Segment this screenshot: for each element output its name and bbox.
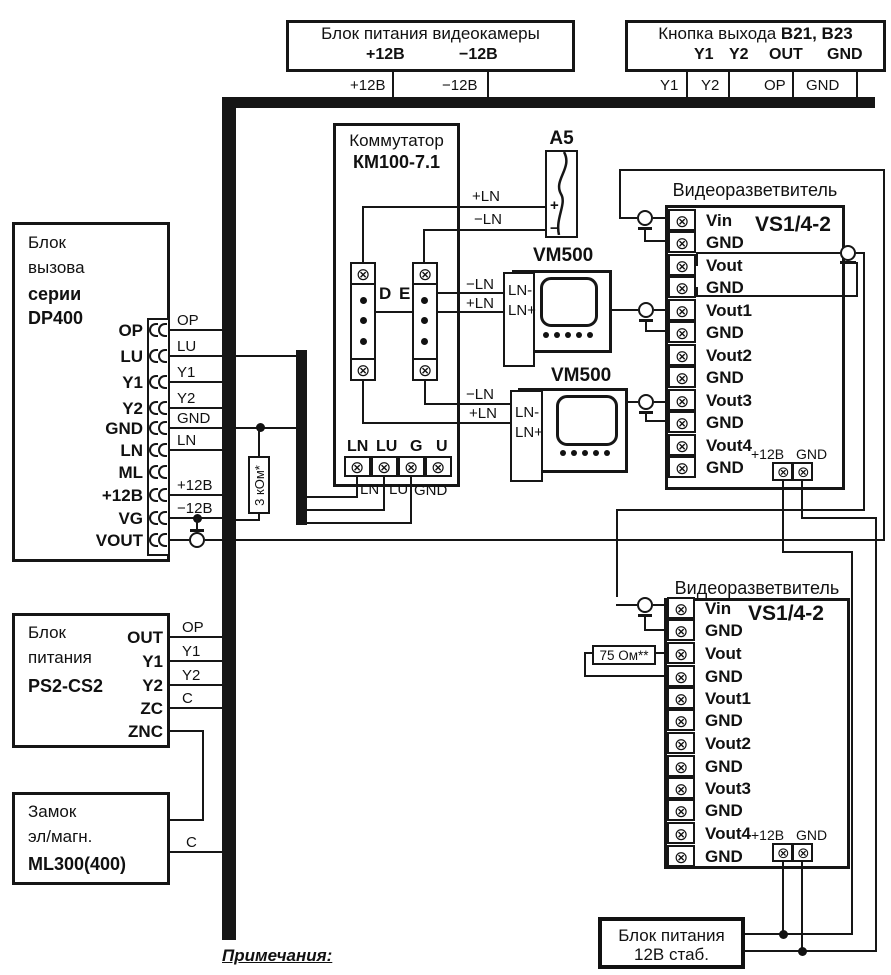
camera-plus-terminal: +	[550, 197, 559, 214]
power-label: +12В	[751, 827, 784, 843]
strip-dot	[360, 338, 367, 345]
terminal-block: ⊗	[668, 344, 696, 366]
terminal-label: GND	[705, 757, 743, 777]
monitor-dot	[604, 450, 610, 456]
camera-a5-label: А5	[545, 128, 578, 150]
monitor-dot	[576, 332, 582, 338]
terminal-block: ⊗	[668, 366, 696, 388]
terminal-block: ⊗	[667, 687, 695, 709]
wire-label: GND	[414, 482, 447, 499]
wire	[801, 517, 877, 519]
clamp-icon	[158, 443, 167, 457]
terminal-label: Vout	[706, 256, 743, 276]
clamp-icon	[158, 349, 167, 363]
junction-dot	[779, 930, 788, 939]
clamp-icon	[158, 375, 167, 389]
clamp-icon	[149, 375, 158, 389]
exit-button-title-text: Кнопка выхода	[658, 24, 781, 43]
terminal-label: Vout	[705, 644, 742, 664]
wire-label: LN	[360, 481, 379, 498]
wire	[424, 381, 426, 405]
terminal-block: ⊗	[667, 709, 695, 731]
terminal-label: GND	[705, 621, 743, 641]
wire	[487, 72, 489, 99]
terminal-label: LN	[60, 441, 143, 461]
wire	[653, 604, 667, 606]
terminal-label: U	[436, 438, 448, 456]
wire	[170, 851, 222, 853]
lock-title: Замок	[28, 802, 76, 822]
psu-12v-box: Блок питания 12В стаб.	[598, 917, 745, 969]
camera-minus-terminal: −	[550, 220, 559, 237]
terminal-label: LU	[376, 438, 397, 456]
wire	[170, 660, 222, 662]
terminal-block: ⊗	[772, 843, 793, 862]
psu-12v-title: Блок питания	[602, 926, 741, 946]
wire	[654, 401, 668, 403]
terminal-label: GND	[706, 413, 744, 433]
wire	[376, 311, 412, 313]
wire	[170, 730, 204, 732]
screw-terminal-icon: ⊗	[675, 325, 689, 342]
screw-terminal-icon: ⊗	[675, 235, 689, 252]
wire	[170, 707, 222, 709]
wire	[616, 509, 618, 597]
monitor-dot	[543, 332, 549, 338]
terminal-block: ⊗	[667, 597, 695, 619]
monitor-dot	[582, 450, 588, 456]
wire	[645, 420, 668, 422]
power-label: GND	[796, 446, 827, 462]
wire	[307, 522, 412, 524]
screw-terminal-icon: ⊗	[675, 460, 689, 477]
wire	[612, 309, 638, 311]
wire-label: LU	[389, 481, 408, 498]
monitor-terminal-box: LN- LN+	[510, 390, 543, 482]
terminal-label: GND	[705, 711, 743, 731]
screw-terminal-icon: ⊗	[675, 438, 689, 455]
terminal-block: ⊗	[371, 456, 398, 477]
screw-terminal-icon: ⊗	[418, 266, 432, 283]
splitter-model: VS1/4-2	[755, 213, 831, 237]
wire	[745, 933, 853, 935]
wire	[362, 206, 364, 264]
splitter-title: Видеоразветвитель	[665, 180, 845, 201]
terminal-label: LN-	[515, 404, 539, 421]
terminal-block: ⊗	[398, 456, 425, 477]
terminal-label: LN-	[508, 282, 532, 299]
wire	[202, 730, 204, 821]
column-e-label: E	[399, 284, 410, 304]
strip-dot	[360, 317, 367, 324]
wire	[782, 551, 853, 553]
wire	[697, 252, 840, 254]
terminal-label: LN+	[508, 302, 536, 319]
camera-psu-minus: −12В	[459, 46, 498, 64]
terminal-label: Y2	[60, 399, 143, 419]
terminal-block: ⊗	[668, 299, 696, 321]
terminal-label: +12В	[60, 486, 143, 506]
wire	[644, 629, 667, 631]
wire-label: +LN	[469, 405, 497, 422]
resistor-value: 3 кОм*	[252, 465, 267, 506]
coax-connector-icon	[638, 302, 654, 318]
call-block-title: Блок	[28, 233, 66, 253]
clamp-icon	[149, 323, 158, 337]
wire	[616, 509, 865, 511]
wire	[801, 862, 803, 952]
monitor-name: VM500	[551, 365, 611, 387]
terminal-block: ⊗	[667, 822, 695, 844]
terminal-label: LU	[60, 347, 143, 367]
screw-terminal-icon: ⊗	[674, 691, 688, 708]
clamp-icon	[158, 401, 167, 415]
screw-terminal-icon: ⊗	[675, 348, 689, 365]
wire-label: LN	[177, 432, 196, 449]
wire-label: −LN	[474, 211, 502, 228]
lock-model: ML300(400)	[28, 854, 126, 875]
power-label: +12В	[751, 446, 784, 462]
wire	[840, 261, 856, 264]
terminal-label: Vin	[705, 599, 731, 619]
mid-riser-cable	[296, 350, 307, 525]
screw-terminal-icon: ⊗	[674, 759, 688, 776]
wire	[851, 551, 853, 935]
screw-terminal-icon: ⊗	[674, 826, 688, 843]
wire	[696, 252, 698, 266]
terminal-label: Vout4	[705, 824, 751, 844]
left-riser-cable	[222, 97, 236, 940]
wire	[619, 217, 637, 219]
screw-terminal-icon: ⊗	[674, 713, 688, 730]
terminal-label: GND	[705, 801, 743, 821]
wire	[782, 481, 784, 553]
terminal-block: ⊗	[792, 843, 813, 862]
call-block-title: вызова	[28, 258, 85, 278]
wire	[619, 169, 885, 171]
screw-terminal-icon: ⊗	[777, 846, 790, 861]
wire	[170, 449, 222, 451]
wire	[875, 517, 877, 952]
coax-connector-icon	[189, 532, 205, 548]
clamp-icon	[158, 488, 167, 502]
strip-dot	[421, 297, 428, 304]
wire-label: −LN	[466, 276, 494, 293]
psu-title: Блок	[28, 623, 66, 643]
wire	[170, 427, 307, 429]
terminal-label: GND	[705, 847, 743, 867]
wire	[883, 169, 885, 541]
terminal-label: GND	[706, 323, 744, 343]
terminal-label: ML	[60, 463, 143, 483]
wire	[170, 539, 189, 541]
camera-a5-box: + −	[545, 150, 578, 238]
terminal-block: ⊗	[668, 231, 696, 253]
wire-label: GND	[177, 410, 210, 427]
camera-psu-title: Блок питания видеокамеры	[290, 24, 571, 44]
terminal-block: ⊗	[668, 321, 696, 343]
wire	[745, 950, 877, 952]
screw-terminal-icon: ⊗	[356, 362, 370, 379]
wiring-diagram: Блок питания видеокамеры +12В −12В +12В …	[0, 0, 891, 975]
call-block-series: серии	[28, 284, 81, 305]
wire-label: OP	[177, 312, 199, 329]
wire	[170, 494, 222, 496]
wire-label: Y1	[182, 643, 200, 660]
terminal-label: ZC	[80, 699, 163, 719]
terminal-block: ⊗	[792, 462, 813, 481]
screw-terminal-icon: ⊗	[675, 415, 689, 432]
terminal-block: ⊗	[425, 456, 452, 477]
clamp-icon	[149, 443, 158, 457]
screw-terminal-icon: ⊗	[675, 393, 689, 410]
strip-terminal: ⊗	[350, 358, 376, 381]
screw-terminal-icon: ⊗	[404, 459, 418, 476]
resistor-3kohm: 3 кОм*	[248, 456, 270, 514]
terminal-label: Y2	[80, 676, 163, 696]
screw-terminal-icon: ⊗	[418, 362, 432, 379]
monitor-dot	[560, 450, 566, 456]
wire	[307, 496, 358, 498]
terminal-block: ⊗	[668, 434, 696, 456]
screw-terminal-icon: ⊗	[675, 280, 689, 297]
wire-label: OP	[182, 619, 204, 636]
screw-terminal-icon: ⊗	[674, 803, 688, 820]
screw-terminal-icon: ⊗	[350, 459, 364, 476]
terminal-label: GND	[706, 233, 744, 253]
exit-terminal: Y1	[694, 46, 714, 64]
wire	[258, 428, 260, 456]
wire-label: Y1	[177, 364, 195, 381]
wire-label: +12В	[350, 77, 385, 94]
clamp-icon	[158, 533, 167, 547]
terminal-label: OUT	[80, 628, 163, 648]
terminal-block: ⊗	[667, 799, 695, 821]
terminal-label: GND	[705, 667, 743, 687]
wire	[362, 206, 547, 208]
monitor-dot	[565, 332, 571, 338]
terminal-block: ⊗	[668, 276, 696, 298]
column-d-label: D	[379, 284, 391, 304]
terminal-block: ⊗	[667, 845, 695, 867]
screw-terminal-icon: ⊗	[674, 623, 688, 640]
clamp-icon	[158, 323, 167, 337]
wire	[362, 422, 520, 424]
coax-connector-icon	[637, 210, 653, 226]
terminal-block: ⊗	[772, 462, 793, 481]
wire-label: GND	[806, 77, 839, 94]
terminal-label: GND	[706, 368, 744, 388]
screw-terminal-icon: ⊗	[675, 258, 689, 275]
screw-terminal-icon: ⊗	[674, 601, 688, 618]
monitor-screen	[556, 395, 618, 446]
exit-terminal: GND	[827, 46, 863, 64]
wire-label: Y2	[182, 667, 200, 684]
strip-terminal: ⊗	[412, 262, 438, 285]
strip-dot	[360, 297, 367, 304]
wire	[170, 381, 222, 383]
wire-label: +LN	[466, 295, 494, 312]
wire-label: C	[186, 834, 197, 851]
wire-label: Y1	[660, 77, 678, 94]
wire	[616, 604, 637, 606]
power-label: GND	[796, 827, 827, 843]
strip-dot	[421, 338, 428, 345]
clamp-icon	[149, 421, 158, 435]
wire-label: −12В	[442, 77, 477, 94]
wire	[423, 229, 547, 231]
notes-heading: Примечания:	[222, 946, 332, 966]
terminal-block: ⊗	[667, 642, 695, 664]
terminal-label: Vout4	[706, 436, 752, 456]
wire	[653, 217, 668, 219]
terminal-block: ⊗	[667, 665, 695, 687]
wire	[170, 329, 222, 331]
splitter-model: VS1/4-2	[748, 602, 824, 626]
wire	[356, 477, 358, 498]
wire	[424, 403, 512, 405]
camera-psu-plus: +12В	[366, 46, 405, 64]
strip-terminal: ⊗	[412, 358, 438, 381]
strip-dot	[421, 317, 428, 324]
terminal-label: Vin	[706, 211, 732, 231]
terminal-label: Vout3	[706, 391, 752, 411]
screw-terminal-icon: ⊗	[356, 266, 370, 283]
wire-label: C	[182, 690, 193, 707]
terminal-label: ZNC	[80, 722, 163, 742]
coax-connector-icon	[637, 597, 653, 613]
terminal-label: Vout2	[706, 346, 752, 366]
exit-button-models: В21, В23	[781, 24, 853, 43]
terminal-label: GND	[60, 419, 143, 439]
commutator-model: КМ100-7.1	[335, 152, 458, 173]
wire	[392, 72, 394, 99]
wire	[383, 477, 385, 511]
wire	[645, 330, 668, 332]
terminal-label: G	[410, 438, 422, 456]
screw-terminal-icon: ⊗	[675, 303, 689, 320]
wire	[170, 407, 222, 409]
monitor-dot	[571, 450, 577, 456]
terminal-block: ⊗	[668, 389, 696, 411]
junction-dot	[798, 947, 807, 956]
screw-terminal-icon: ⊗	[431, 459, 445, 476]
terminal-label: Y1	[60, 373, 143, 393]
wire	[792, 72, 794, 99]
wire	[170, 684, 222, 686]
monitor-dot	[593, 450, 599, 456]
screw-terminal-icon: ⊗	[674, 669, 688, 686]
monitor-dot	[554, 332, 560, 338]
clamp-icon	[158, 511, 167, 525]
terminal-block: ⊗	[668, 209, 696, 231]
coax-connector-icon	[638, 394, 654, 410]
screw-terminal-icon: ⊗	[675, 370, 689, 387]
clamp-icon	[158, 465, 167, 479]
screw-terminal-icon: ⊗	[377, 459, 391, 476]
terminal-label: Vout2	[705, 734, 751, 754]
monitor-terminal-box: LN- LN+	[503, 272, 535, 367]
wire	[782, 862, 784, 935]
terminal-label: OP	[60, 321, 143, 341]
wire	[644, 240, 668, 242]
terminal-label: Vout3	[705, 779, 751, 799]
wire	[307, 509, 385, 511]
wire	[856, 262, 858, 296]
screw-terminal-icon: ⊗	[797, 465, 810, 480]
wire	[170, 636, 222, 638]
screw-terminal-icon: ⊗	[675, 213, 689, 230]
wire	[584, 675, 667, 677]
wire	[236, 519, 260, 521]
psu-12v-title: 12В стаб.	[602, 945, 741, 965]
terminal-block: ⊗	[667, 619, 695, 641]
terminal-label: LN	[347, 438, 368, 456]
wire	[728, 72, 730, 99]
wire	[697, 295, 858, 297]
screw-terminal-icon: ⊗	[674, 849, 688, 866]
wire	[170, 355, 307, 357]
clamp-icon	[149, 401, 158, 415]
wire	[686, 72, 688, 99]
wire	[656, 652, 667, 654]
wire-label: LU	[177, 338, 196, 355]
terminal-block: ⊗	[668, 254, 696, 276]
terminal-label: VOUT	[60, 531, 143, 551]
screw-terminal-icon: ⊗	[674, 781, 688, 798]
monitor-dot	[587, 332, 593, 338]
wire	[410, 477, 412, 524]
wire	[628, 401, 638, 403]
wire	[856, 72, 858, 99]
screw-terminal-icon: ⊗	[674, 646, 688, 663]
wire	[170, 819, 204, 821]
wire-label: Y2	[701, 77, 719, 94]
clamp-icon	[149, 488, 158, 502]
terminal-block: ⊗	[667, 755, 695, 777]
top-bus-cable	[222, 97, 875, 108]
wire-label: OP	[764, 77, 786, 94]
terminal-block: ⊗	[668, 456, 696, 478]
screw-terminal-icon: ⊗	[797, 846, 810, 861]
splitter-title: Видеоразветвитель	[664, 578, 850, 599]
screw-terminal-icon: ⊗	[777, 465, 790, 480]
resistor-75ohm: 75 Ом**	[592, 645, 656, 665]
lock-title: эл/магн.	[28, 827, 92, 847]
clamp-icon	[158, 421, 167, 435]
wire	[423, 229, 425, 264]
terminal-block: ⊗	[667, 777, 695, 799]
monitor-name: VM500	[533, 245, 593, 267]
clamp-icon	[149, 533, 158, 547]
coax-connector-icon	[840, 245, 856, 261]
wire	[584, 652, 586, 677]
terminal-label: Y1	[80, 652, 163, 672]
terminal-label: Vout1	[705, 689, 751, 709]
screw-terminal-icon: ⊗	[674, 736, 688, 753]
terminal-label: LN+	[515, 424, 543, 441]
wire	[863, 252, 865, 510]
wire-label: +12В	[177, 477, 212, 494]
monitor-screen	[540, 277, 598, 327]
wire-label: Y2	[177, 390, 195, 407]
terminal-label: GND	[706, 458, 744, 478]
commutator-title: Коммутатор	[335, 131, 458, 151]
wire-label: −LN	[466, 386, 494, 403]
terminal-block: ⊗	[344, 456, 371, 477]
terminal-label: VG	[60, 509, 143, 529]
exit-terminal: Y2	[729, 46, 749, 64]
